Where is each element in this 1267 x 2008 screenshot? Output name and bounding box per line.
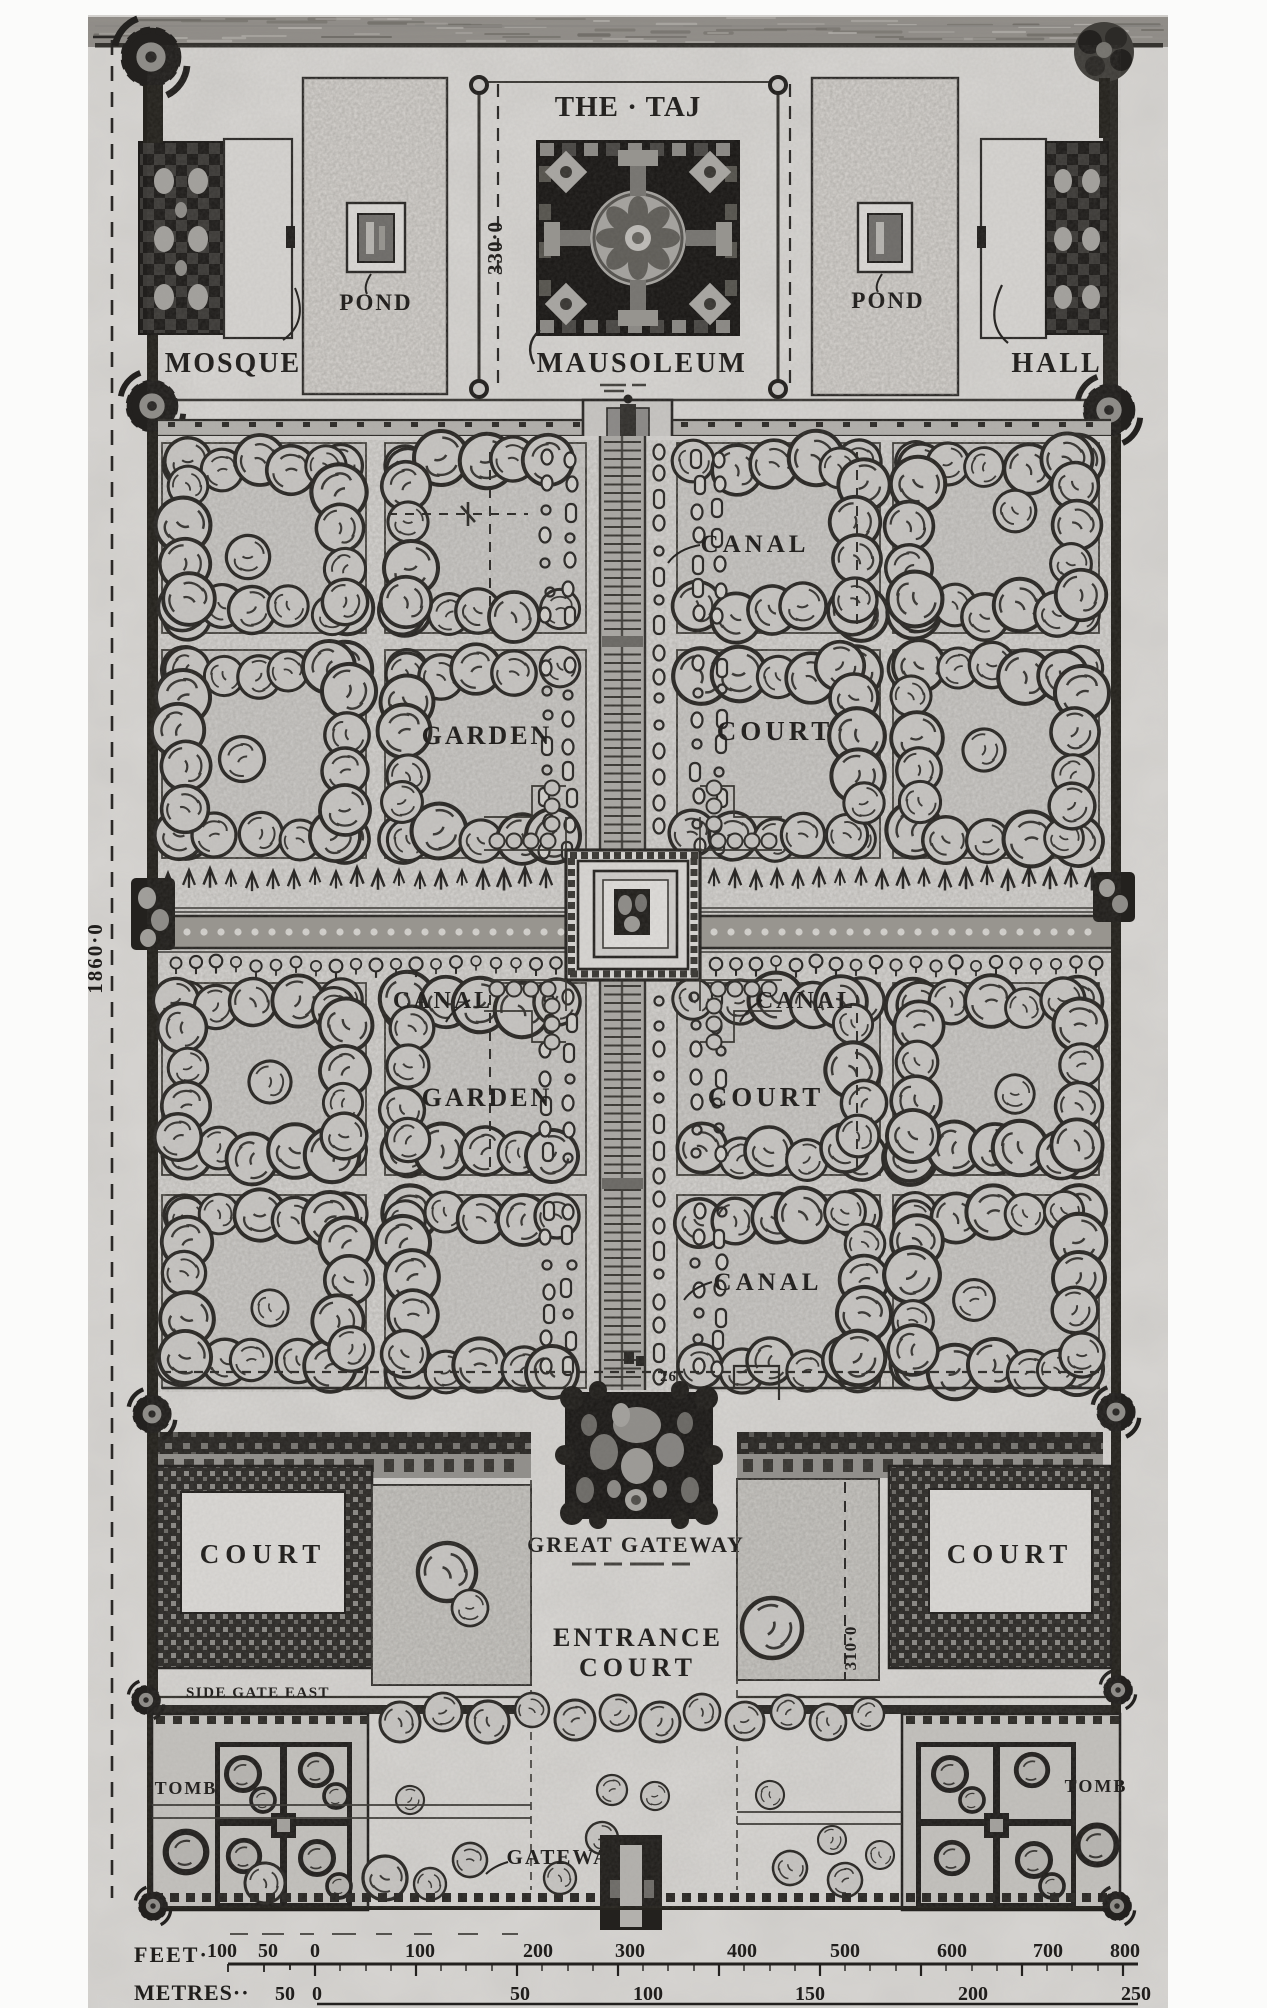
svg-text:800: 800 (1110, 1940, 1140, 1962)
svg-text:100: 100 (633, 1983, 663, 2005)
svg-text:0: 0 (310, 1940, 320, 1962)
svg-text:100: 100 (405, 1940, 435, 1962)
svg-text:100: 100 (207, 1940, 237, 1962)
svg-text:700: 700 (1033, 1940, 1063, 1962)
svg-text:1860·0: 1860·0 (83, 922, 107, 994)
svg-text:250: 250 (1121, 1983, 1151, 2005)
svg-text:150: 150 (795, 1983, 825, 2005)
svg-text:0: 0 (312, 1983, 322, 2005)
svg-text:600: 600 (937, 1940, 967, 1962)
svg-text:500: 500 (830, 1940, 860, 1962)
svg-text:METRES··: METRES·· (134, 1980, 250, 2005)
svg-text:300: 300 (615, 1940, 645, 1962)
svg-text:50: 50 (510, 1983, 530, 2005)
svg-text:200: 200 (958, 1983, 988, 2005)
svg-text:50: 50 (258, 1940, 278, 1962)
svg-text:200: 200 (523, 1940, 553, 1962)
svg-text:400: 400 (727, 1940, 757, 1962)
svg-text:FEET·: FEET· (134, 1942, 209, 1967)
svg-text:50: 50 (275, 1983, 295, 2005)
